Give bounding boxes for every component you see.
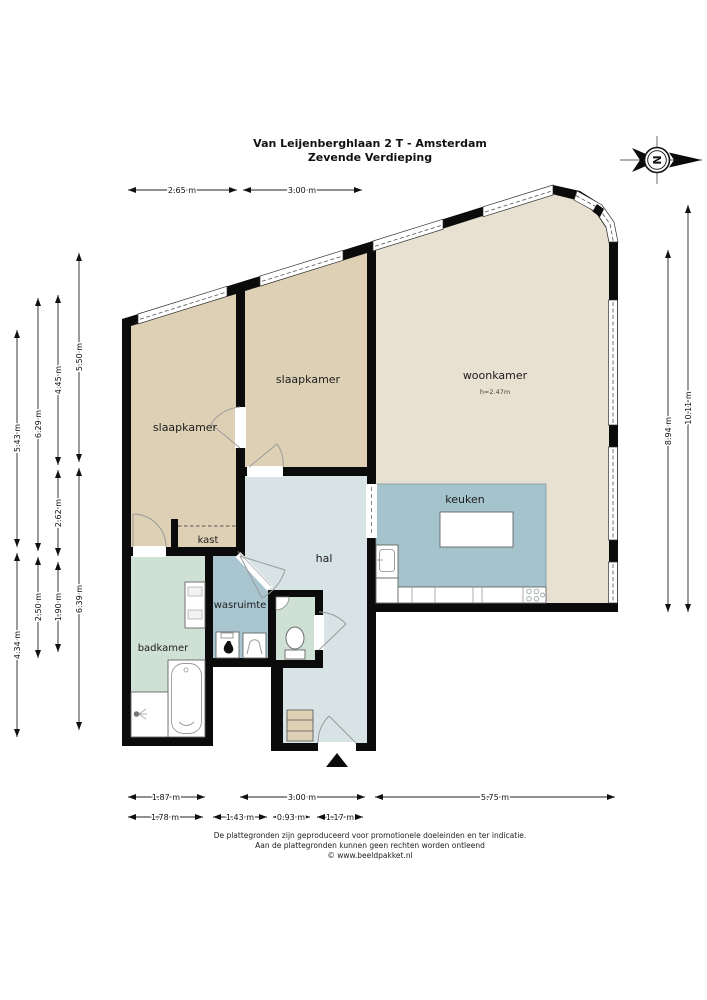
kitchen-counter-bottom <box>398 587 546 603</box>
dimension-label: 5.75 m <box>481 793 509 802</box>
plan-title: Van Leijenberghlaan 2 T - Amsterdam <box>253 137 487 150</box>
window <box>609 447 618 540</box>
door-opening <box>235 407 246 448</box>
label-slaapkamer-left: slaapkamer <box>153 421 218 434</box>
entrance-marker <box>326 753 348 767</box>
door-opening <box>133 546 166 557</box>
door-opening <box>314 615 324 650</box>
entry-cabinet <box>287 710 313 741</box>
dimension-label: 1.87 m <box>152 793 180 802</box>
compass-letter: N <box>650 155 663 164</box>
dimensions-bottom-2: 1.78 m 1.43 m 0.93 m 1.17 m <box>128 813 363 822</box>
wall-stub <box>171 519 178 556</box>
plan-subtitle: Zevende Verdieping <box>308 151 432 164</box>
dimension-label: 10.11 m <box>684 391 693 424</box>
dimension-label: 3.00 m <box>288 186 316 195</box>
door-opening <box>247 466 283 477</box>
label-slaapkamer-right: slaapkamer <box>276 373 341 386</box>
label-keuken: keuken <box>445 493 484 506</box>
dimension-label: 6.29 m <box>34 410 43 438</box>
kitchen-island <box>440 512 513 547</box>
label-woonkamer: woonkamer <box>463 369 528 382</box>
footer-disclaimer-1: De plattegronden zijn geproduceerd voor … <box>214 831 527 840</box>
dimension-label: 4.34 m <box>13 631 22 659</box>
dimension-label: 1.78 m <box>151 813 179 822</box>
dimension-label: 5.43 m <box>13 424 22 452</box>
door-opening <box>318 742 356 752</box>
sink-icon <box>380 550 395 572</box>
floorplan-svg: Van Leijenberghlaan 2 T - Amsterdam Zeve… <box>0 0 707 1000</box>
dimension-label: 5.50 m <box>75 343 84 371</box>
kitchen-counter-left <box>376 578 398 603</box>
label-hal: hal <box>316 552 333 565</box>
label-wasruimte: wasruimte <box>214 600 267 611</box>
footer-copyright: © www.beeldpakket.nl <box>327 851 412 860</box>
dimensions-top: 2.65 m 3.00 m <box>128 186 362 195</box>
dimension-label: 6.39 m <box>75 585 84 613</box>
dimension-label: 2.62 m <box>54 499 63 527</box>
dimension-label: 2.65 m <box>168 186 196 195</box>
dimension-label: 1.43 m <box>226 813 254 822</box>
dimension-label: 3.00 m <box>288 793 316 802</box>
dimensions-left: 5.50 m 4.45 m 6.29 m 5.43 m 2.62 m 2.50 … <box>13 253 84 737</box>
dimensions-right: 10.11 m 8.94 m <box>664 205 693 612</box>
dimension-label: 4.45 m <box>54 366 63 394</box>
compass-icon: N <box>620 136 702 184</box>
label-badkamer: badkamer <box>138 643 189 654</box>
label-woonkamer-height: h=2.47m <box>480 388 510 396</box>
dimension-label: 8.94 m <box>664 417 673 445</box>
dimension-label: 0.93 m <box>277 813 305 822</box>
toilet-icon <box>286 627 304 649</box>
dimension-label: 2.50 m <box>34 593 43 621</box>
dryer-icon <box>243 633 266 658</box>
floorplan-page: Van Leijenberghlaan 2 T - Amsterdam Zeve… <box>0 0 707 1000</box>
footer-disclaimer-2: Aan de plattegronden kunnen geen rechten… <box>255 841 485 850</box>
dimension-label: 1.90 m <box>54 593 63 621</box>
label-kast: kast <box>198 535 219 546</box>
dimension-label: 1.17 m <box>326 813 354 822</box>
dimensions-bottom-1: 1.87 m 3.00 m 5.75 m <box>128 793 615 802</box>
